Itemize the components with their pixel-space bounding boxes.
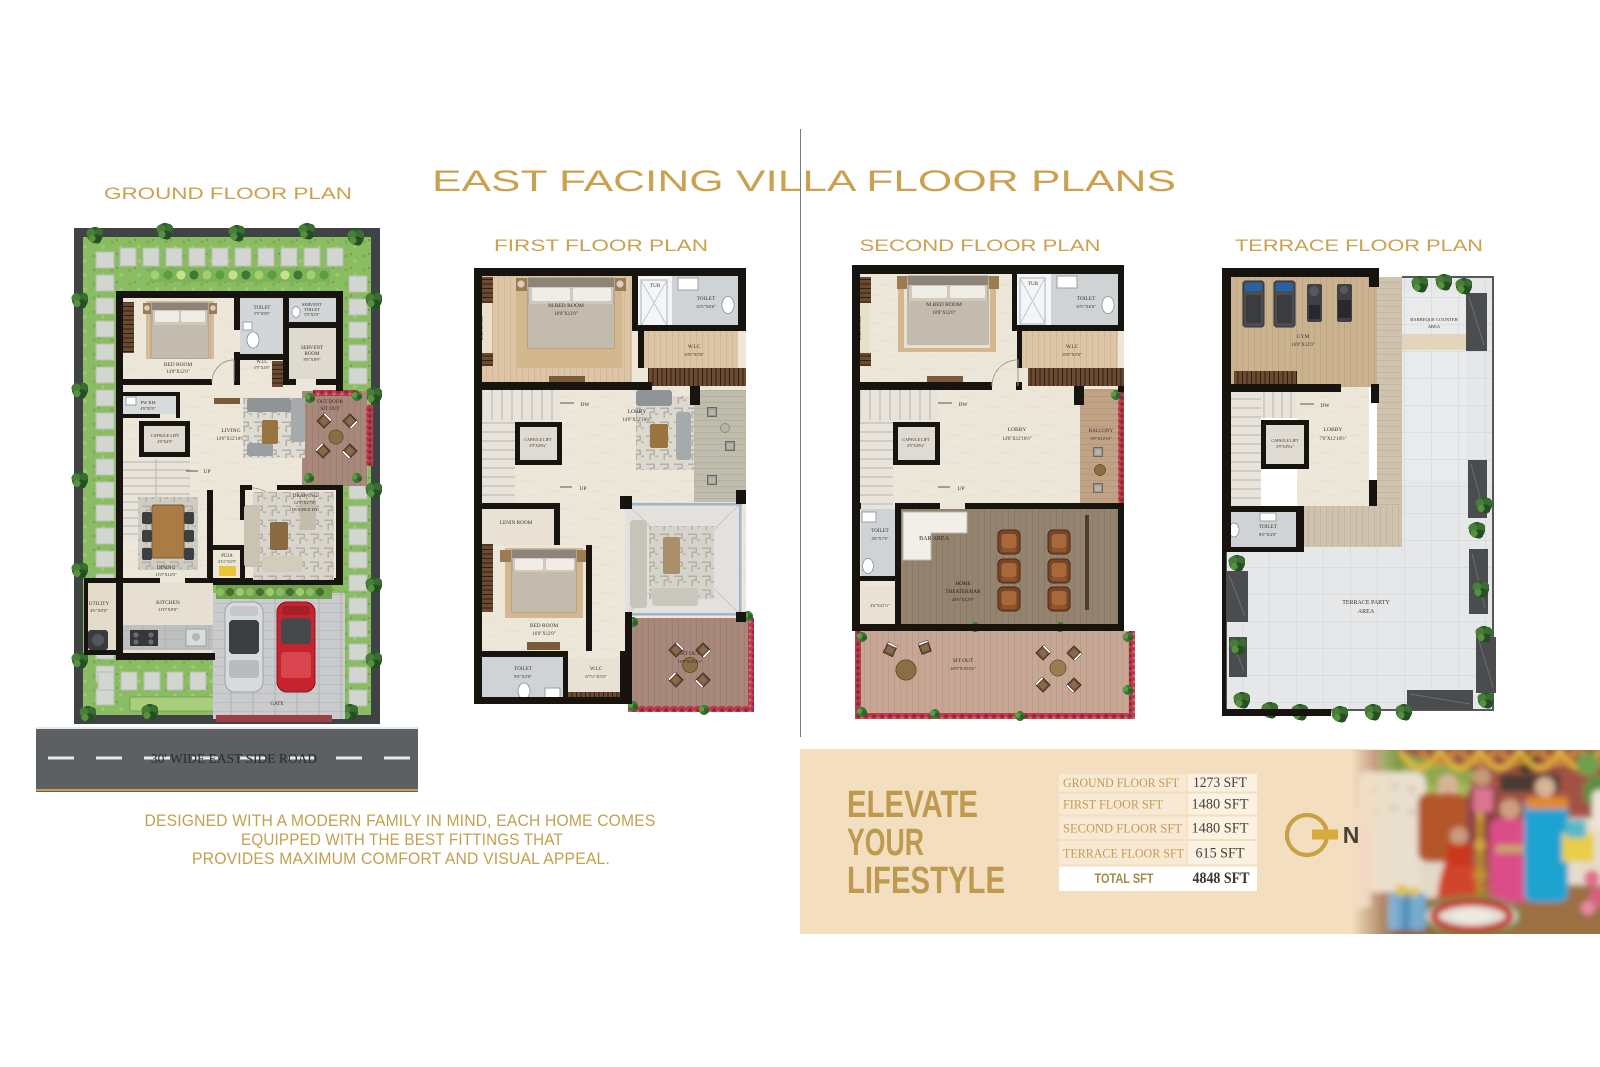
svg-text:UP: UP — [579, 486, 586, 492]
svg-text:615 SFT: 615 SFT — [1196, 845, 1245, 861]
svg-text:4'9"X4'9¼": 4'9"X4'9¼" — [907, 444, 925, 448]
svg-text:TERRACE PARTY: TERRACE PARTY — [1342, 600, 1390, 606]
svg-text:W.LC: W.LC — [688, 344, 701, 350]
svg-text:10'5"X6'6": 10'5"X6'6" — [696, 304, 716, 309]
svg-text:UP: UP — [957, 486, 964, 492]
svg-text:GATE: GATE — [270, 701, 283, 707]
svg-text:5'0"X12'10": 5'0"X12'10" — [1090, 436, 1112, 441]
svg-text:BED ROOM: BED ROOM — [164, 362, 193, 368]
svg-text:GROUND FLOOR SFT: GROUND FLOOR SFT — [1063, 775, 1179, 790]
svg-text:GYM: GYM — [1296, 334, 1309, 340]
svg-text:UTILITY: UTILITY — [89, 601, 110, 607]
svg-text:AREA: AREA — [1428, 324, 1441, 329]
svg-text:GROUND FLOOR PLAN: GROUND FLOOR PLAN — [104, 185, 352, 203]
svg-text:TOILET: TOILET — [514, 666, 533, 672]
svg-text:4'1½"X5'9": 4'1½"X5'9" — [218, 559, 237, 564]
svg-text:14'6"X12'10½": 14'6"X12'10½" — [216, 437, 246, 442]
svg-text:UP: UP — [203, 469, 210, 475]
svg-text:4'9"X4'9": 4'9"X4'9" — [157, 439, 173, 444]
svg-text:M.BED ROOM: M.BED ROOM — [926, 302, 962, 308]
svg-text:7'0"X12'10½": 7'0"X12'10½" — [1319, 437, 1346, 442]
svg-text:CAPSULE LIFT: CAPSULE LIFT — [902, 437, 930, 442]
svg-text:BALCONY: BALCONY — [1089, 429, 1114, 434]
svg-text:DRAWING: DRAWING — [293, 493, 318, 499]
svg-text:M.BED ROOM: M.BED ROOM — [548, 303, 584, 309]
svg-text:5'9"X4'9": 5'9"X4'9" — [254, 365, 271, 370]
svg-text:N: N — [1343, 822, 1360, 848]
svg-text:EAST FACING VILLA FLOOR PLANS: EAST FACING VILLA FLOOR PLANS — [432, 165, 1176, 198]
svg-text:8'0"X4'0": 8'0"X4'0" — [1259, 532, 1277, 537]
svg-text:TUB: TUB — [650, 283, 661, 289]
svg-text:4'9"X5'9": 4'9"X5'9" — [140, 406, 156, 411]
svg-text:OUT DOOR: OUT DOOR — [317, 400, 343, 405]
svg-text:12'9"X17'0": 12'9"X17'0" — [294, 500, 317, 505]
svg-text:5'9"X9'0": 5'9"X9'0" — [254, 311, 271, 316]
svg-text:CAPSULE LIFT: CAPSULE LIFT — [151, 433, 180, 438]
svg-text:CAPSULE LIFT: CAPSULE LIFT — [1271, 438, 1299, 443]
svg-text:16'9"X10'4½": 16'9"X10'4½" — [950, 666, 976, 671]
svg-text:18'0"X12'0": 18'0"X12'0" — [932, 311, 956, 316]
svg-text:SECOND FLOOR PLAN: SECOND FLOOR PLAN — [860, 237, 1101, 255]
svg-text:16'0"X12'0": 16'0"X12'0" — [532, 632, 556, 637]
svg-text:8'9"X8'9": 8'9"X8'9" — [303, 357, 320, 362]
svg-text:W.LC: W.LC — [590, 666, 603, 672]
svg-text:AREA: AREA — [1358, 609, 1375, 615]
svg-text:14'0"X12'0": 14'0"X12'0" — [166, 370, 190, 375]
svg-text:LOBBY: LOBBY — [1008, 427, 1027, 433]
svg-text:10'0"X5'6": 10'0"X5'6" — [684, 352, 704, 357]
svg-text:LOBBY: LOBBY — [1324, 427, 1343, 433]
svg-text:BAR AREA: BAR AREA — [919, 536, 950, 542]
svg-text:THEATER/BAR: THEATER/BAR — [945, 589, 981, 595]
svg-text:DINING: DINING — [157, 565, 176, 571]
svg-text:TOILET: TOILET — [1077, 296, 1096, 302]
svg-text:CAPSULE LIFT: CAPSULE LIFT — [524, 437, 552, 442]
svg-text:30' WIDE EAST SIDE ROAD: 30' WIDE EAST SIDE ROAD — [151, 751, 317, 766]
svg-text:YOUR: YOUR — [847, 822, 924, 864]
svg-text:9'0"X5'0": 9'0"X5'0" — [514, 674, 532, 679]
svg-text:LIFESTYLE: LIFESTYLE — [847, 860, 1005, 902]
svg-text:DW: DW — [580, 402, 590, 408]
svg-text:4848 SFT: 4848 SFT — [1193, 870, 1251, 887]
svg-text:5'9"X3'9": 5'9"X3'9" — [304, 312, 320, 317]
svg-text:KITCHEN: KITCHEN — [156, 600, 180, 606]
svg-text:10'5"X6'6": 10'5"X6'6" — [1076, 304, 1096, 309]
svg-text:EQUIPPED WITH THE BEST FITTING: EQUIPPED WITH THE BEST FITTINGS THAT — [241, 830, 563, 849]
svg-text:W.LC: W.LC — [1066, 344, 1079, 350]
svg-text:14'6"X12'10½": 14'6"X12'10½" — [1002, 437, 1032, 442]
svg-text:1480 SFT: 1480 SFT — [1192, 820, 1249, 836]
svg-text:TERRACE FLOOR PLAN: TERRACE FLOOR PLAN — [1235, 237, 1483, 255]
svg-text:DOUBLE HT: DOUBLE HT — [292, 507, 318, 512]
svg-text:PW RM: PW RM — [140, 400, 155, 405]
svg-text:BED ROOM: BED ROOM — [530, 623, 559, 629]
svg-text:TOILET: TOILET — [871, 529, 888, 534]
svg-text:TOILET: TOILET — [697, 296, 716, 302]
svg-text:HOME: HOME — [955, 581, 970, 587]
svg-text:SERVENT: SERVENT — [301, 346, 323, 351]
svg-text:18'0"X12'0": 18'0"X12'0" — [554, 312, 578, 317]
svg-text:SIT OUT: SIT OUT — [321, 407, 340, 412]
svg-text:SIT OUT: SIT OUT — [680, 651, 700, 657]
svg-text:FIRST FLOOR SFT: FIRST FLOOR SFT — [1063, 796, 1163, 811]
svg-text:23'6"X12'9": 23'6"X12'9" — [952, 597, 975, 602]
svg-text:4'9"X4'9¼": 4'9"X4'9¼" — [529, 444, 547, 448]
svg-text:DW: DW — [958, 402, 968, 408]
svg-text:PROVIDES MAXIMUM COMFORT AND V: PROVIDES MAXIMUM COMFORT AND VISUAL APPE… — [192, 849, 610, 868]
svg-text:DESIGNED WITH A MODERN FAMILY: DESIGNED WITH A MODERN FAMILY IN MIND, E… — [145, 811, 656, 830]
svg-text:TOTAL SFT: TOTAL SFT — [1095, 870, 1154, 886]
svg-text:4'6"X4'1½": 4'6"X4'1½" — [870, 603, 890, 608]
svg-text:1273 SFT: 1273 SFT — [1193, 775, 1247, 791]
svg-text:6'7½"X5'0": 6'7½"X5'0" — [585, 674, 606, 679]
svg-text:11'0"X12'0": 11'0"X12'0" — [155, 572, 177, 577]
svg-text:SIT OUT: SIT OUT — [953, 658, 974, 664]
svg-text:4'9"X4'9¼": 4'9"X4'9¼" — [1276, 445, 1294, 449]
svg-text:TUB: TUB — [1028, 281, 1039, 287]
svg-text:ELEVATE: ELEVATE — [847, 784, 978, 826]
svg-text:4'6"X7'6": 4'6"X7'6" — [871, 536, 888, 541]
svg-text:LOBBY: LOBBY — [628, 409, 647, 415]
svg-text:4'6"X9'0": 4'6"X9'0" — [90, 608, 108, 613]
svg-text:1480 SFT: 1480 SFT — [1192, 796, 1249, 812]
svg-text:SECOND FLOOR SFT: SECOND FLOOR SFT — [1063, 820, 1182, 835]
svg-text:LENIN ROOM: LENIN ROOM — [500, 520, 533, 526]
svg-text:BARBEQUE COUNTER: BARBEQUE COUNTER — [1410, 317, 1459, 322]
svg-text:TERRACE FLOOR SFT: TERRACE FLOOR SFT — [1063, 845, 1184, 860]
svg-text:14'6"X12'10½": 14'6"X12'10½" — [622, 418, 652, 423]
svg-text:16'9"X10'4½": 16'9"X10'4½" — [678, 659, 703, 664]
svg-text:10'0"X5'6": 10'0"X5'6" — [1062, 352, 1082, 357]
svg-text:16'0"X12'0": 16'0"X12'0" — [1291, 343, 1315, 348]
svg-text:DW: DW — [1320, 403, 1330, 409]
svg-text:FIRST FLOOR PLAN: FIRST FLOOR PLAN — [494, 237, 708, 255]
svg-text:LIVING: LIVING — [221, 428, 240, 434]
svg-text:TOILET: TOILET — [1259, 524, 1278, 530]
svg-text:11'0"X9'0": 11'0"X9'0" — [158, 607, 178, 612]
